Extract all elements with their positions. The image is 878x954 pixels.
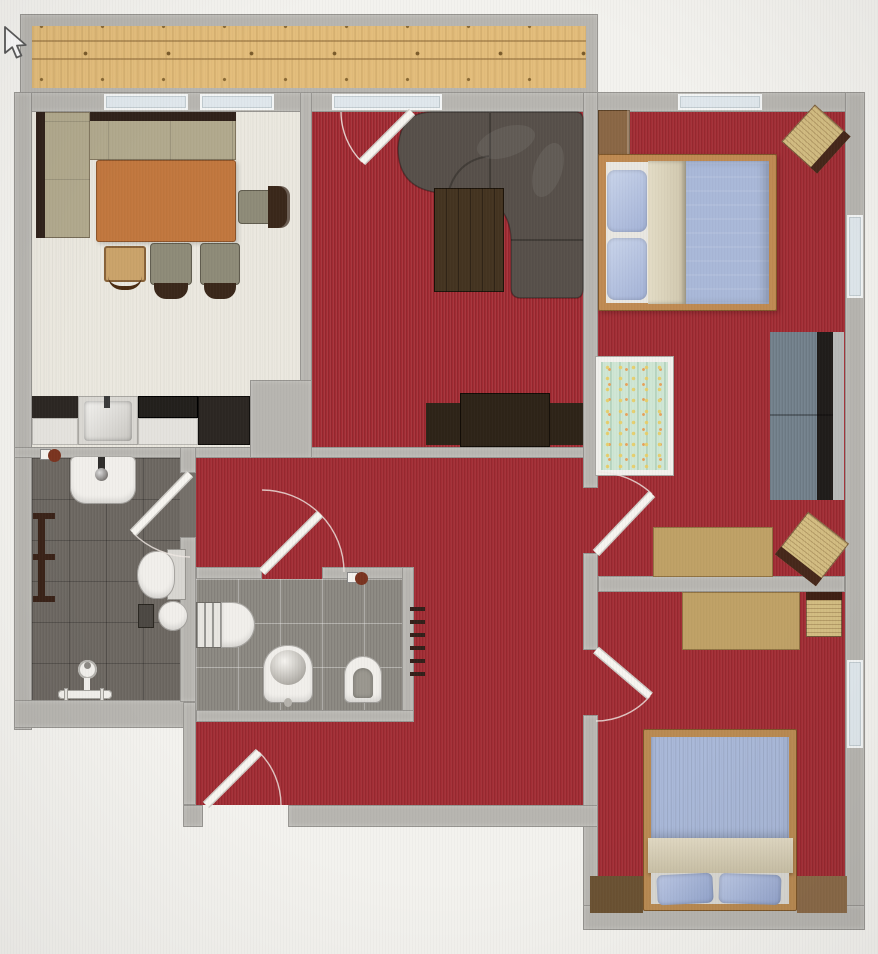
entrance-door[interactable] bbox=[206, 752, 281, 805]
floor-plan-canvas bbox=[0, 0, 878, 954]
wc-door[interactable] bbox=[262, 490, 344, 572]
mouse-pointer-icon bbox=[3, 26, 29, 60]
bedroom1-door[interactable] bbox=[596, 472, 652, 553]
bedroom2-door[interactable] bbox=[596, 650, 650, 721]
balcony-door[interactable] bbox=[341, 112, 412, 162]
bathroom-door[interactable] bbox=[133, 474, 190, 557]
doors-overlay bbox=[0, 0, 878, 954]
